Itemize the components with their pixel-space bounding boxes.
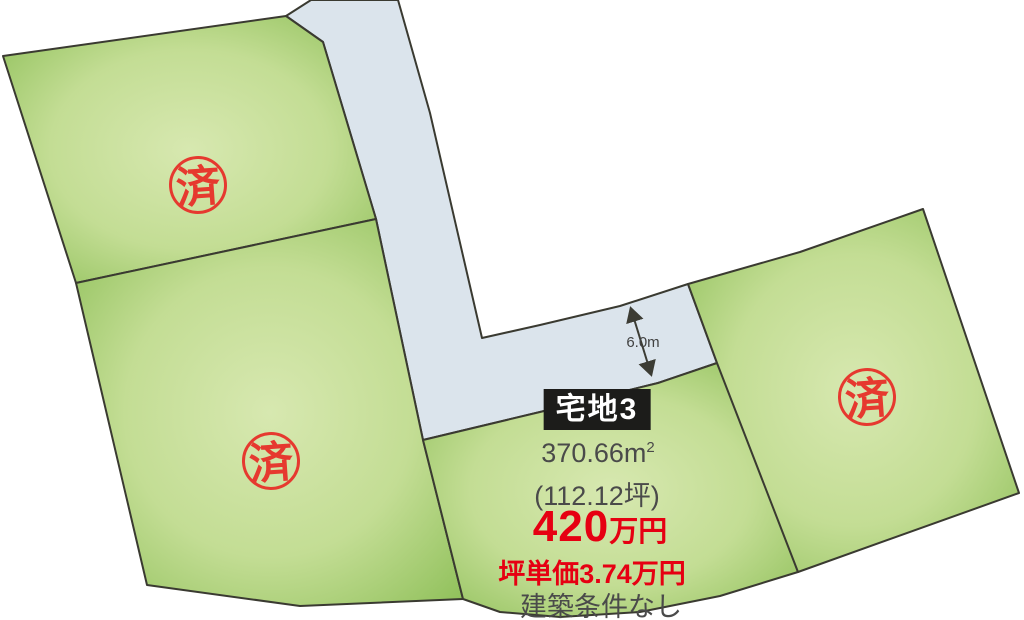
lot-price-unit: 万円 [609,516,667,548]
lot-area-value: 370.66m [541,438,646,468]
lot-price: 420万円 [533,502,667,552]
plot-map-svg [0,0,1024,620]
road-width-label: 6.0m [626,334,659,351]
lot-building-condition-note: 建築条件なし [520,585,682,620]
lot-area-sup: 2 [646,439,654,456]
lot-price-value: 420 [533,502,609,551]
land-plot-diagram: 済 済 済 6.0m 宅地3 370.66m2 (112.12坪) 420万円 … [0,0,1024,620]
lot-area-m2: 370.66m2 [541,438,654,469]
lot-name-badge: 宅地3 [544,389,651,430]
